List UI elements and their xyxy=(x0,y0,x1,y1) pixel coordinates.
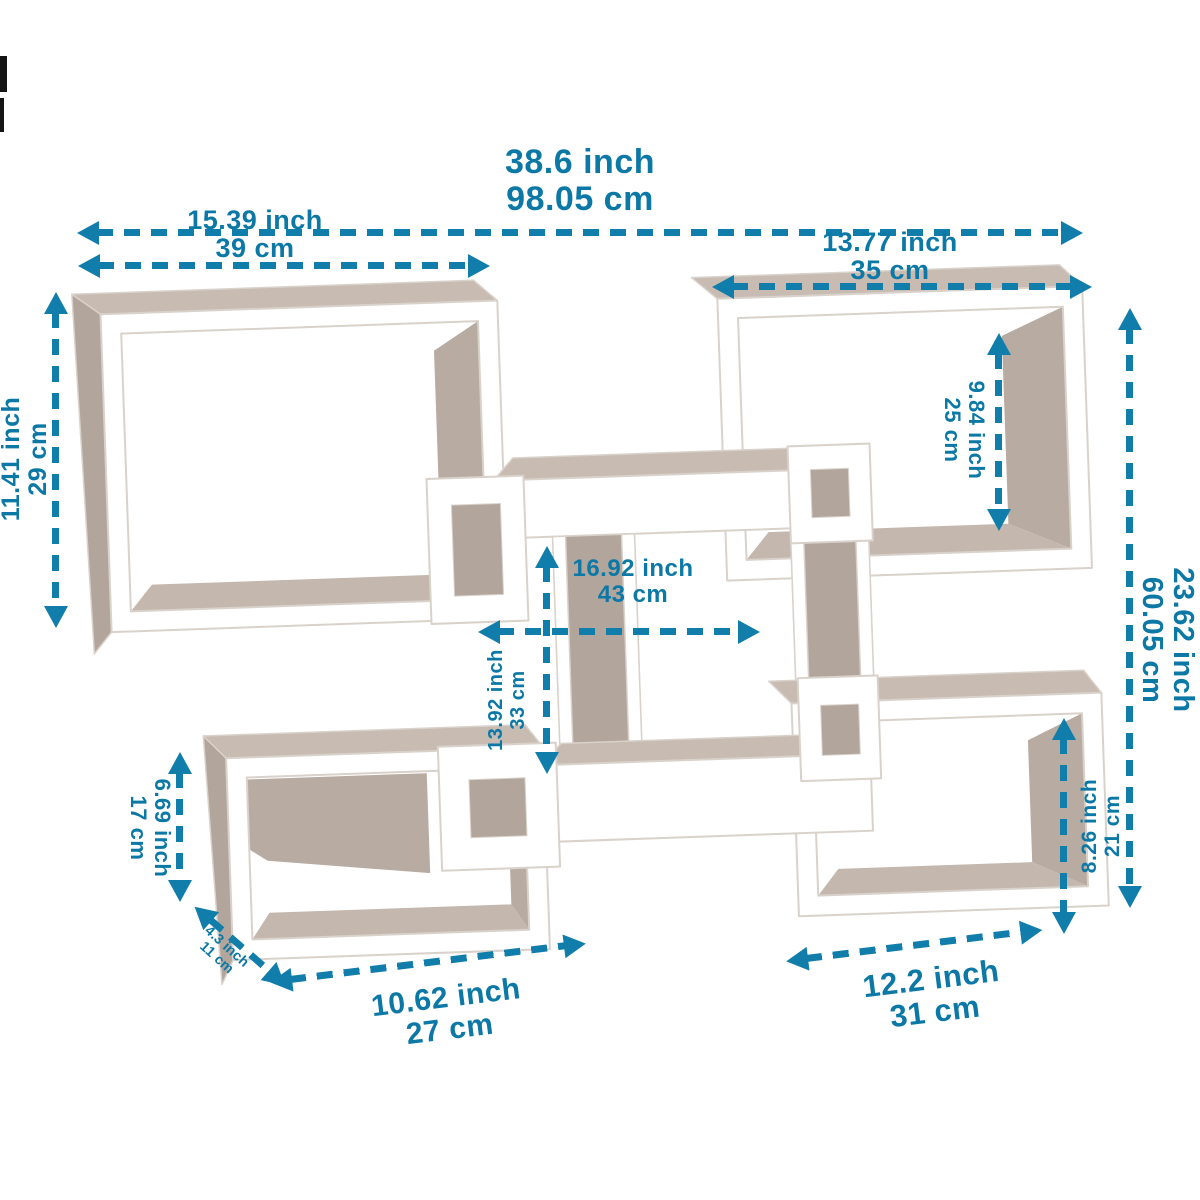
bottom-left-height-cm: 17 cm xyxy=(126,753,150,903)
dim-label-middle-height: 13.92 inch 33 cm xyxy=(483,610,533,790)
shelf-box-top-right xyxy=(692,264,1092,581)
middle-width-cm: 43 cm xyxy=(508,582,758,608)
top-left-width-inch: 15.39 inch xyxy=(105,206,405,234)
middle-width-inch: 16.92 inch xyxy=(508,556,758,582)
dim-label-overall-width: 38.6 inch 98.05 cm xyxy=(380,144,780,217)
top-left-width-cm: 39 cm xyxy=(105,234,405,262)
middle-height-inch: 13.92 inch xyxy=(486,610,508,790)
overall-width-cm: 98.05 cm xyxy=(380,181,780,218)
dim-label-bottom-left-height: 6.69 inch 17 cm xyxy=(125,753,175,903)
dim-line-bottom-right-height xyxy=(1060,738,1067,914)
overall-height-cm: 60.05 cm xyxy=(1136,525,1167,755)
top-right-inner-height-cm: 25 cm xyxy=(940,350,964,510)
dim-label-top-left-width: 15.39 inch 39 cm xyxy=(105,206,405,263)
overall-height-inch: 23.62 inch xyxy=(1167,525,1198,755)
dim-label-top-right-inner-height: 9.84 inch 25 cm xyxy=(938,350,990,510)
bottom-right-height-inch: 8.26 inch xyxy=(1079,736,1102,916)
product-dimension-diagram: 38.6 inch 98.05 cm 15.39 inch 39 cm 13.7… xyxy=(0,0,1200,1200)
top-right-width-inch: 13.77 inch xyxy=(740,228,1040,256)
top-right-inner-height-inch: 9.84 inch xyxy=(964,350,988,510)
dim-label-overall-height: 23.62 inch 60.05 cm xyxy=(1132,525,1200,755)
left-height-inch: 11.41 inch xyxy=(0,374,25,544)
dim-label-middle-width: 16.92 inch 43 cm xyxy=(508,556,758,608)
dim-line-top-left-width xyxy=(98,262,470,269)
dim-label-left-height: 11.41 inch 29 cm xyxy=(0,374,54,544)
top-right-width-cm: 35 cm xyxy=(740,256,1040,284)
dim-line-bottom-left-height xyxy=(176,772,183,882)
bottom-left-height-inch: 6.69 inch xyxy=(150,753,174,903)
bottom-right-height-cm: 21 cm xyxy=(1102,736,1125,916)
shelf-connector-lower-right xyxy=(798,675,882,781)
dim-label-bottom-right-height: 8.26 inch 21 cm xyxy=(1075,736,1129,916)
middle-height-cm: 33 cm xyxy=(508,610,530,790)
left-height-cm: 29 cm xyxy=(25,374,52,544)
dim-label-top-right-width: 13.77 inch 35 cm xyxy=(740,228,1040,285)
dim-line-top-right-inner-height xyxy=(995,353,1002,511)
overall-width-inch: 38.6 inch xyxy=(380,144,780,181)
shelf-connector-upper-right xyxy=(788,444,873,544)
dim-line-middle-width xyxy=(498,628,740,635)
